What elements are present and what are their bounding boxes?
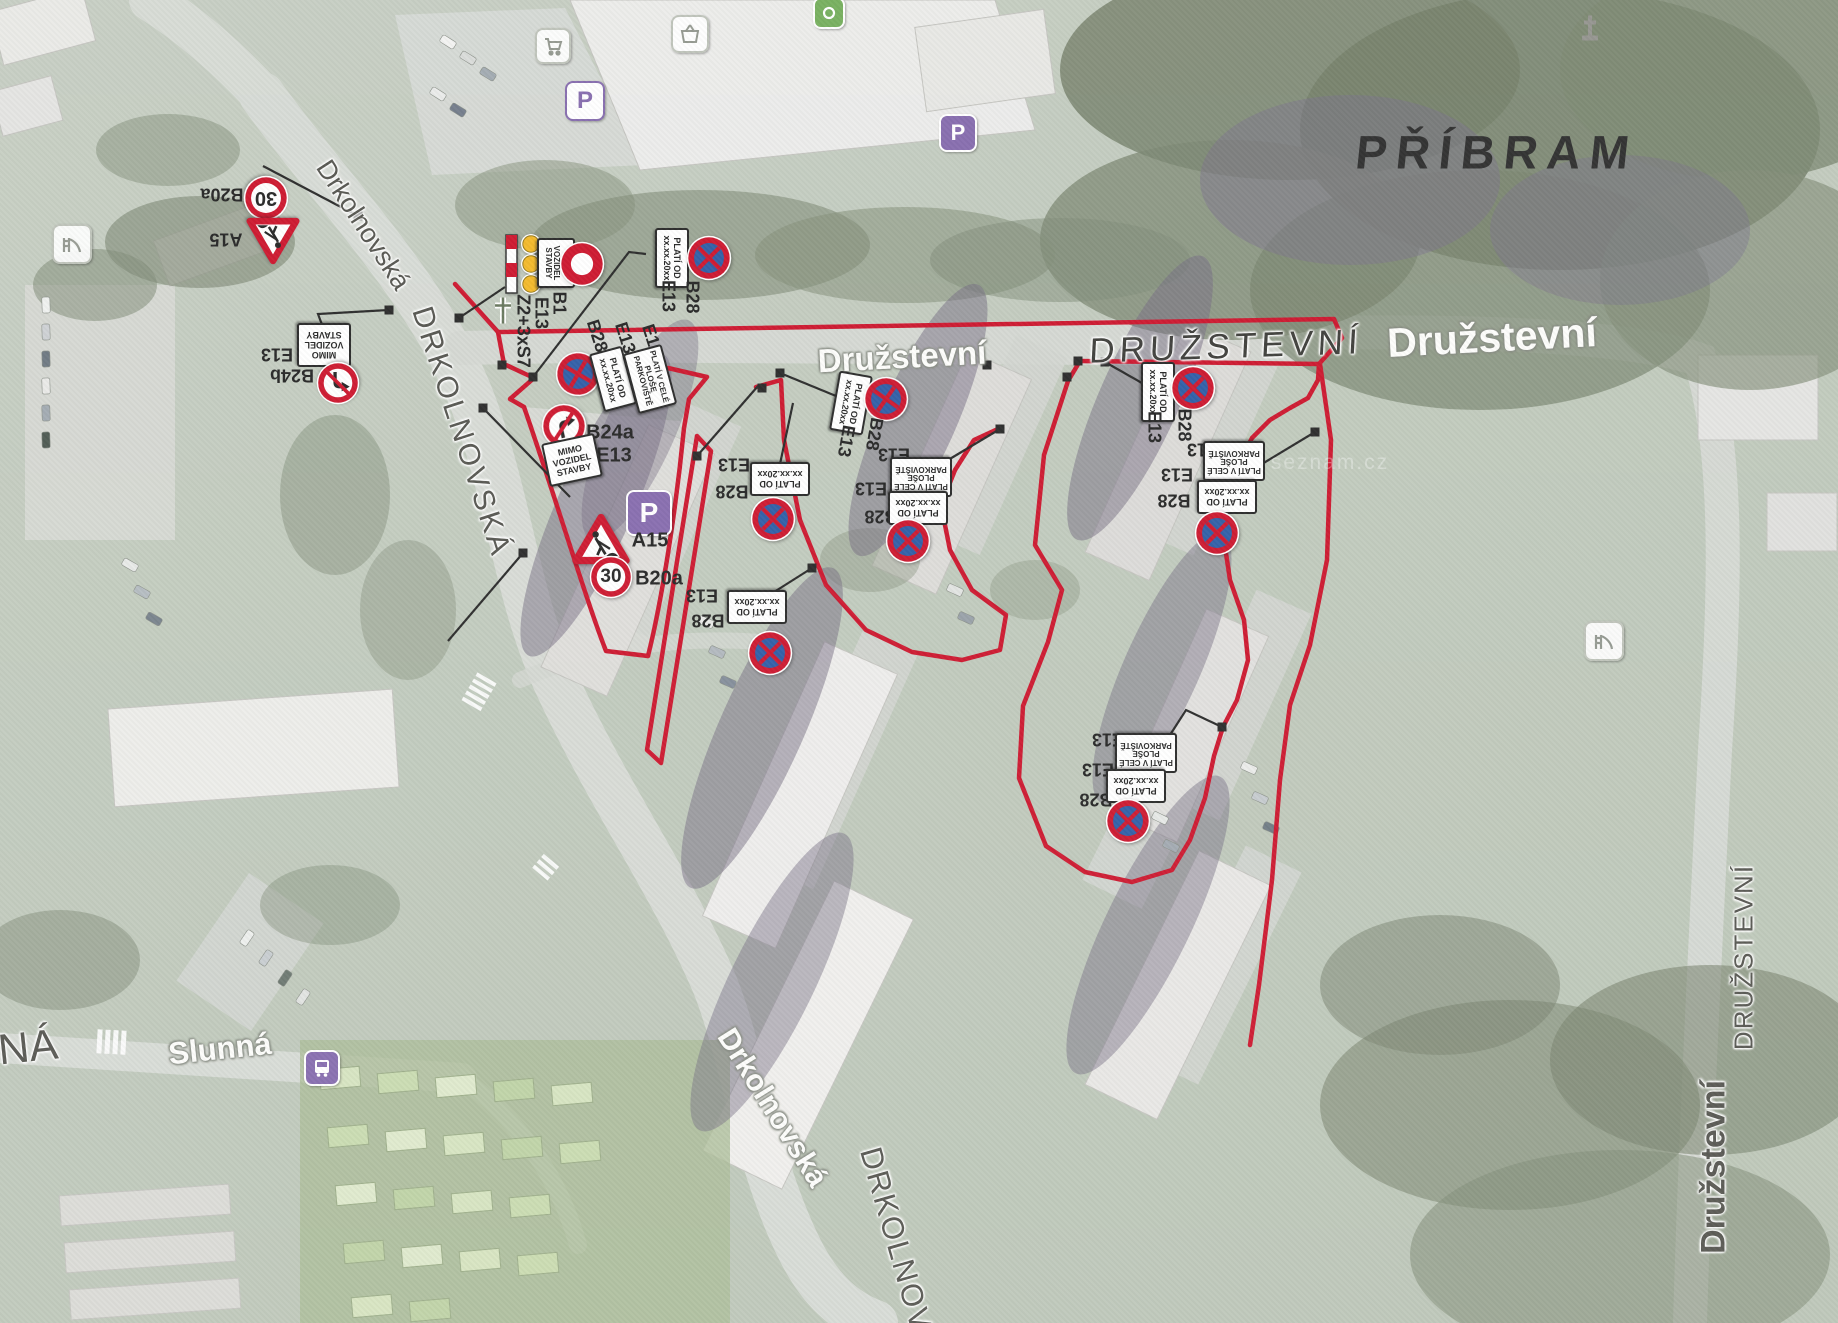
- plate-line: PLATÍ OD: [1115, 786, 1156, 796]
- no-stopping-sign-b28: [1105, 798, 1151, 844]
- barrier-with-lights-icon-z2: [502, 232, 542, 296]
- sign-code-label-e13: E13: [718, 454, 750, 475]
- sign-code-label-e13: E13: [855, 478, 887, 499]
- plate-line: xx.xx.20xx: [1148, 369, 1158, 414]
- playground-icon: [52, 224, 92, 264]
- no-stopping-sign-b28: [1170, 365, 1216, 411]
- plate-line: STAVBY: [306, 330, 341, 340]
- plate-line: xx.xx.20xx: [895, 498, 940, 508]
- roadworks-sign-a15: [246, 217, 300, 265]
- sign-code-label-b28: B28: [1157, 490, 1190, 511]
- no-stopping-sign-b28: [885, 518, 931, 564]
- sign-code-label-z2: Z2+3xS7: [513, 294, 534, 368]
- plate-line: PLATÍ OD: [672, 237, 682, 278]
- additional-plate-plati-od: PLATÍ OD xx.xx.20xx: [750, 462, 810, 496]
- plate-line: PLATÍ V CELÉ: [894, 481, 948, 490]
- plate-line: xx.xx.20xx: [734, 597, 779, 607]
- green-poi-icon: [813, 0, 845, 29]
- sign-code-label-b28: B28: [682, 280, 703, 313]
- no-stopping-sign-b28: [747, 630, 793, 676]
- plate-line: PARKOVIŠTĚ: [1208, 448, 1259, 457]
- plate-line: PLATÍ OD: [897, 508, 938, 518]
- supermarket-basket-icon: [671, 15, 709, 53]
- cemetery-icon: [1576, 12, 1604, 49]
- city-label: PŘÍBRAM: [1353, 125, 1641, 180]
- parking-poi-icon: P: [939, 114, 977, 152]
- additional-plate-plati-cele: PLATÍ V CELÉ PLOŠE PARKOVIŠTĚ: [1203, 441, 1265, 481]
- sign-code-label-e13: E13: [686, 585, 718, 606]
- no-stopping-sign-b28: [686, 235, 732, 281]
- street-label-druzstevni-right-upper: DRUŽSTEVNÍ: [1729, 864, 1760, 1050]
- traffic-plan-map: PŘÍBRAM seznam.cz Drkolnovská DRKOLNOVSK…: [0, 0, 1838, 1323]
- sign-code-label-a15: A15: [209, 229, 242, 250]
- plate-line: PARKOVIŠTĚ: [895, 464, 946, 473]
- plate-line: xx.xx.20xx: [1204, 487, 1249, 497]
- plate-line: PARKOVIŠTĚ: [1120, 740, 1171, 749]
- sign-code-label-e13: E13: [596, 445, 632, 468]
- sign-code-label-b1: B1: [549, 291, 570, 314]
- bus-stop-icon: [304, 1050, 340, 1086]
- plate-line: xx.xx.20xx: [757, 469, 802, 479]
- plate-line: PLOŠE: [1220, 457, 1247, 466]
- no-left-turn-sign-b24b: [316, 361, 360, 405]
- sign-code-label-b20a: B20a: [635, 568, 683, 591]
- sign-code-label-a15: A15: [632, 530, 669, 553]
- sign-code-label-e13: E13: [658, 280, 679, 312]
- sign-code-label-b28: B28: [715, 481, 748, 502]
- additional-plate-plati-cele: PLATÍ V CELÉ PLOŠE PARKOVIŠTĚ: [1115, 733, 1177, 773]
- street-label-druzstevni-right-lower: Družstevní: [1695, 1080, 1734, 1254]
- sign-code-label-b24b: B24b: [270, 365, 314, 386]
- speed-limit-30-sign-b20a: 30: [589, 555, 633, 599]
- parking-poi-icon: P: [565, 81, 605, 121]
- sign-code-label-e13: E13: [261, 344, 293, 365]
- plate-line: PLATÍ OD: [759, 479, 800, 489]
- map-watermark: seznam.cz: [1271, 451, 1389, 475]
- plate-line: xx.xx.20xx: [1113, 776, 1158, 786]
- sign-code-label-e13: E13: [1161, 464, 1193, 485]
- plate-line: PLOŠE: [907, 473, 934, 482]
- plate-line: PLATÍ V CELÉ: [1119, 757, 1173, 766]
- plate-line: VOZIDEL: [305, 340, 344, 350]
- no-entry-sign-b1: [559, 241, 605, 287]
- plate-line: PLATÍ V CELÉ: [1207, 465, 1261, 474]
- plate-line: PLOŠE: [1132, 749, 1159, 758]
- sign-code-label-b28: B28: [1174, 408, 1195, 441]
- playground-icon: [1584, 621, 1624, 661]
- plate-line: PLATÍ OD: [736, 607, 777, 617]
- no-stopping-sign-b28: [1194, 510, 1240, 556]
- plate-line: PLATÍ OD: [1158, 371, 1168, 412]
- plate-line: xx.xx.20xx: [662, 235, 672, 280]
- shopping-cart-icon: [535, 28, 571, 64]
- sign-code-label-e13: E13: [531, 297, 552, 329]
- sign-code-label-e13: E13: [1144, 411, 1165, 443]
- plate-line: MIMO: [312, 350, 337, 360]
- sign-code-label-b28: B28: [691, 610, 724, 631]
- additional-plate-plati-od: PLATÍ OD xx.xx.20xx: [727, 590, 787, 624]
- plate-line: PLATÍ OD: [1206, 497, 1247, 507]
- no-stopping-sign-b28: [750, 496, 796, 542]
- sign-code-label-b20a: B20a: [200, 184, 243, 205]
- street-label-slunna-cut: NÁ: [0, 1021, 60, 1076]
- plate-line: STAVBY: [543, 247, 552, 278]
- speed-limit-30-sign-b20a: 30: [243, 175, 289, 221]
- additional-plate-plati-od: PLATÍ OD xx.xx.20xx: [1197, 480, 1257, 514]
